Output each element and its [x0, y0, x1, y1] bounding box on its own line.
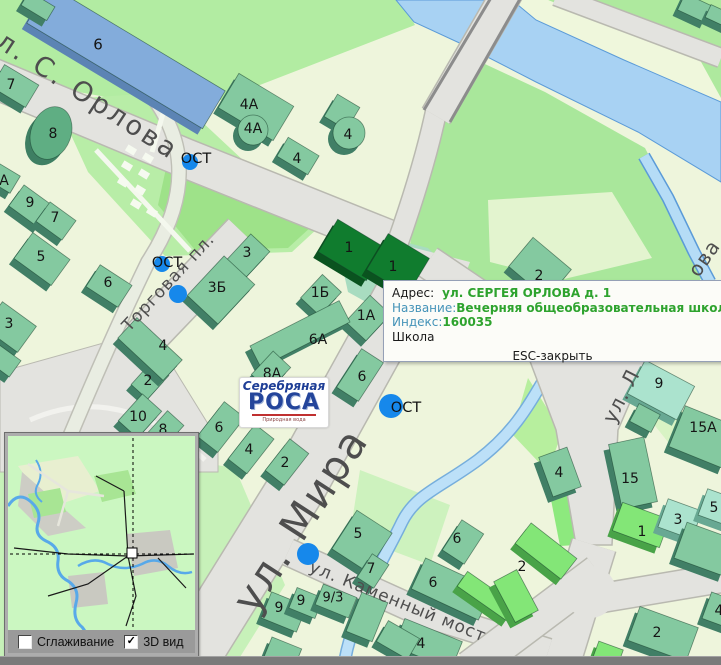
map-canvas[interactable]: 678А9753621086424А4А44233Б1Б1А116А8А6457…: [0, 0, 721, 665]
building-label: 4А: [240, 97, 259, 113]
minimap-panel[interactable]: Сглаживание ✓ 3D вид: [4, 432, 199, 657]
building: [250, 301, 350, 368]
building-label: 4: [159, 338, 168, 354]
building-label: 3: [5, 316, 14, 332]
index-value: 160035: [442, 315, 492, 329]
popup-index-row: Индекс:160035: [392, 315, 713, 330]
building-label: 1: [389, 259, 398, 275]
address-label: Адрес:: [392, 286, 434, 300]
view3d-checkbox-group[interactable]: ✓ 3D вид: [114, 635, 183, 649]
building-label: 6: [93, 35, 103, 53]
popup-category: Школа: [392, 330, 713, 345]
building-label: 2: [518, 559, 527, 575]
brand-line2: РОСА: [240, 392, 328, 413]
building-label: 4: [245, 442, 254, 458]
building-label: 9: [297, 593, 306, 609]
building-label: 15А: [689, 420, 717, 436]
building-label: 5: [710, 500, 719, 516]
building-label: 15: [621, 471, 639, 487]
building-label: 4: [555, 465, 564, 481]
view3d-label: 3D вид: [143, 635, 183, 649]
map-marker[interactable]: [297, 543, 319, 565]
building-label: 2: [144, 373, 153, 389]
building-label: 8: [49, 126, 58, 142]
building-label: 6А: [309, 332, 328, 348]
building-label: 4: [293, 151, 302, 167]
building-label: 6: [429, 575, 438, 591]
building-label: 4А: [244, 121, 263, 137]
minimap-position-marker: [127, 548, 137, 558]
map-marker[interactable]: [169, 285, 187, 303]
building-label: 2: [653, 625, 662, 641]
building-label: 1А: [357, 308, 376, 324]
building-label: 6: [215, 420, 224, 436]
building-label: 9/3: [323, 591, 344, 606]
building-label: 4: [715, 603, 721, 619]
popup-address-row: Адрес: ул. СЕРГЕЯ ОРЛОВА д. 1: [392, 286, 713, 301]
info-popup: Адрес: ул. СЕРГЕЯ ОРЛОВА д. 1 Название:В…: [383, 280, 721, 362]
popup-close-hint: ESC-закрыть: [392, 349, 713, 364]
popup-name-row: Название:Вечерняя общеобразовательная шк…: [392, 301, 713, 316]
window-edge: [0, 656, 721, 665]
building-label: 4: [417, 636, 426, 652]
building-label: 5: [37, 249, 46, 265]
building-label: А: [0, 173, 9, 189]
building-label: 10: [129, 409, 147, 425]
building-label: 9: [26, 195, 35, 211]
building-label: 6: [453, 531, 462, 547]
bus-stop-label: ОСТ: [391, 400, 422, 416]
bus-stop-label: ОСТ: [152, 255, 183, 271]
building-label: 4: [344, 127, 353, 143]
view3d-checkbox[interactable]: ✓: [124, 635, 138, 649]
smoothing-label: Сглаживание: [37, 635, 114, 649]
minimap-toolbar: Сглаживание ✓ 3D вид: [8, 630, 195, 653]
name-label: Название:: [392, 301, 456, 315]
building-label: 1: [345, 240, 354, 256]
building-label: 5: [354, 526, 363, 542]
building-label: 3: [674, 512, 683, 528]
building-label: 6: [358, 369, 367, 385]
brand-watermark: Серебряная РОСА Природная вода: [239, 377, 329, 428]
building-label: 7: [51, 210, 60, 226]
building-label: 6: [104, 275, 113, 291]
building-label: 7: [7, 77, 16, 93]
building-label: 1Б: [311, 285, 330, 301]
building-label: 7: [367, 561, 376, 577]
building-label: 3Б: [208, 280, 227, 296]
bus-stop-label: ОСТ: [181, 151, 212, 167]
brand-tagline: Природная вода: [240, 417, 328, 423]
building: [628, 606, 699, 661]
address-value: ул. СЕРГЕЯ ОРЛОВА д. 1: [438, 286, 611, 300]
smoothing-checkbox-group[interactable]: Сглаживание: [8, 635, 114, 649]
building-label: 1: [638, 524, 647, 540]
minimap-canvas[interactable]: [8, 436, 195, 630]
name-value: Вечерняя общеобразовательная школа № 1: [456, 301, 721, 315]
building-label: 2: [281, 455, 290, 471]
building-label: 9: [655, 376, 664, 392]
building-label: 3: [243, 245, 252, 261]
smoothing-checkbox[interactable]: [18, 635, 32, 649]
index-label: Индекс:: [392, 315, 442, 329]
